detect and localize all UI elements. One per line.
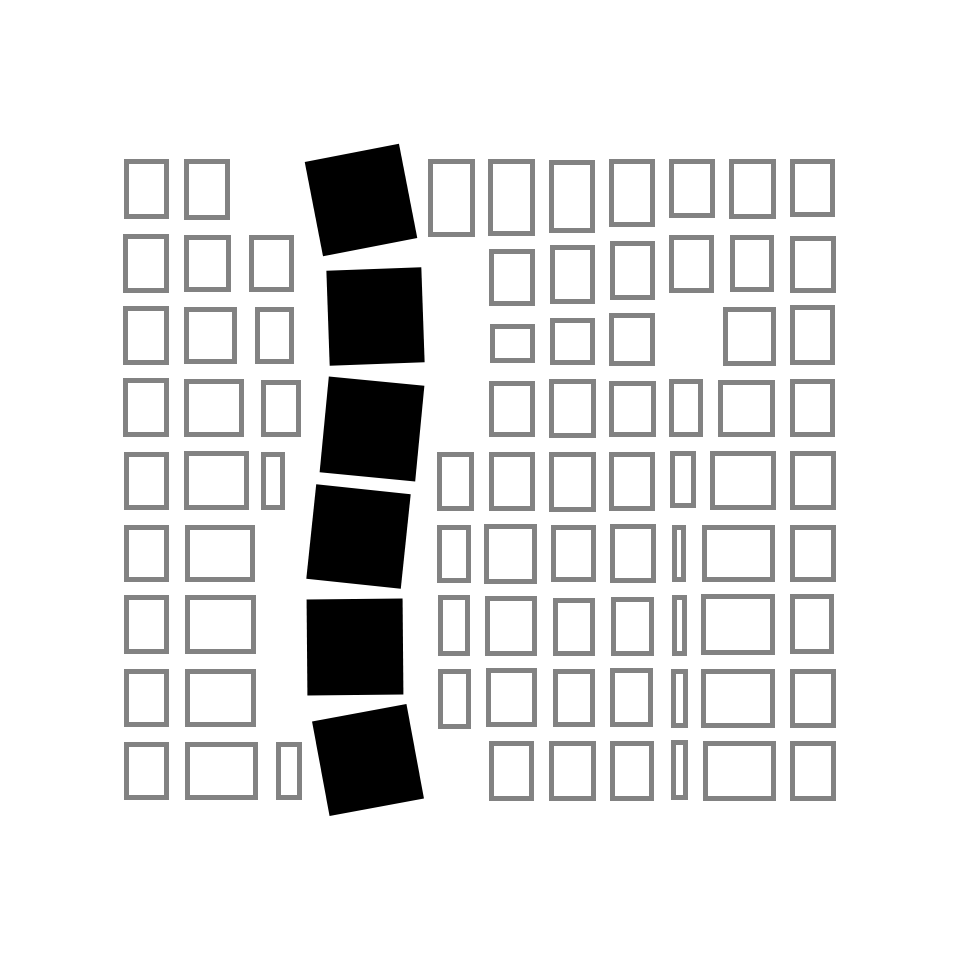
grid-cell-79 — [703, 741, 776, 801]
grid-cell-40 — [549, 452, 596, 512]
grid-cell-3 — [488, 159, 535, 236]
grid-cell-10 — [184, 235, 231, 292]
grid-cell-68 — [610, 668, 653, 727]
grid-cell-16 — [730, 235, 774, 292]
grid-cell-41 — [609, 452, 655, 511]
grid-cell-55 — [185, 595, 256, 654]
grid-cell-66 — [486, 668, 537, 727]
grid-cell-64 — [185, 669, 256, 727]
grid-cell-47 — [437, 525, 471, 583]
grid-cell-78 — [671, 740, 688, 800]
grid-cell-62 — [790, 594, 834, 654]
grid-cell-56 — [438, 595, 470, 656]
grid-cell-8 — [790, 159, 835, 217]
grid-cell-70 — [701, 669, 775, 728]
grid-cell-76 — [549, 741, 596, 801]
grid-cell-49 — [551, 525, 596, 582]
grid-cell-80 — [790, 741, 836, 801]
grid-cell-43 — [710, 451, 776, 510]
grid-cell-77 — [610, 741, 654, 801]
grid-cell-4 — [549, 160, 595, 233]
grid-cell-45 — [124, 525, 169, 582]
grid-cell-75 — [489, 741, 534, 801]
grid-cell-38 — [437, 452, 474, 511]
grid-cell-39 — [489, 452, 535, 511]
grid-cell-48 — [484, 524, 537, 584]
grid-cell-74 — [276, 742, 302, 800]
grid-cell-14 — [610, 241, 655, 300]
grid-cell-26 — [123, 378, 169, 437]
grid-cell-36 — [184, 451, 249, 510]
grid-cell-69 — [671, 669, 688, 728]
grid-cell-24 — [723, 307, 776, 366]
grid-cell-61 — [701, 594, 775, 655]
grid-cell-22 — [550, 318, 595, 365]
black-square-4 — [307, 599, 404, 696]
grid-cell-33 — [718, 380, 775, 437]
grid-cell-15 — [669, 235, 714, 293]
grid-cell-27 — [184, 379, 244, 437]
art-canvas — [0, 0, 960, 960]
grid-cell-2 — [428, 159, 475, 237]
grid-cell-20 — [255, 307, 294, 364]
grid-cell-29 — [489, 381, 535, 437]
grid-cell-13 — [550, 245, 595, 304]
grid-cell-31 — [609, 381, 656, 437]
grid-cell-6 — [669, 159, 715, 218]
grid-cell-18 — [123, 306, 169, 365]
grid-cell-53 — [790, 525, 836, 582]
grid-cell-52 — [702, 525, 775, 582]
grid-cell-71 — [790, 669, 836, 728]
grid-cell-12 — [489, 249, 535, 306]
grid-cell-46 — [185, 525, 255, 582]
grid-cell-11 — [249, 235, 294, 292]
grid-cell-1 — [184, 159, 230, 220]
grid-cell-50 — [610, 524, 656, 583]
grid-cell-5 — [609, 159, 655, 227]
grid-cell-59 — [611, 597, 654, 656]
black-square-1 — [326, 267, 424, 365]
grid-cell-23 — [609, 313, 655, 366]
grid-cell-25 — [790, 305, 835, 365]
grid-cell-60 — [672, 595, 687, 656]
grid-cell-34 — [790, 379, 835, 437]
grid-cell-73 — [185, 742, 258, 800]
grid-cell-51 — [672, 525, 686, 582]
black-square-2 — [320, 377, 425, 482]
grid-cell-17 — [790, 236, 836, 293]
grid-cell-65 — [438, 669, 471, 729]
grid-cell-21 — [490, 324, 535, 363]
grid-cell-72 — [124, 742, 169, 800]
grid-cell-0 — [124, 159, 169, 219]
grid-cell-28 — [261, 380, 301, 437]
black-square-5 — [312, 704, 424, 816]
grid-cell-58 — [553, 598, 595, 656]
grid-cell-37 — [261, 452, 285, 510]
black-square-3 — [306, 484, 410, 588]
grid-cell-7 — [729, 159, 776, 219]
black-square-0 — [305, 144, 418, 257]
grid-cell-32 — [669, 379, 703, 437]
grid-cell-67 — [553, 669, 595, 727]
grid-cell-57 — [485, 596, 537, 656]
grid-cell-19 — [184, 307, 237, 364]
grid-cell-54 — [124, 595, 169, 654]
grid-cell-30 — [549, 379, 596, 438]
grid-cell-63 — [124, 669, 169, 727]
grid-cell-42 — [670, 451, 696, 508]
grid-cell-44 — [790, 451, 836, 510]
grid-cell-35 — [124, 452, 169, 510]
grid-cell-9 — [123, 234, 169, 293]
